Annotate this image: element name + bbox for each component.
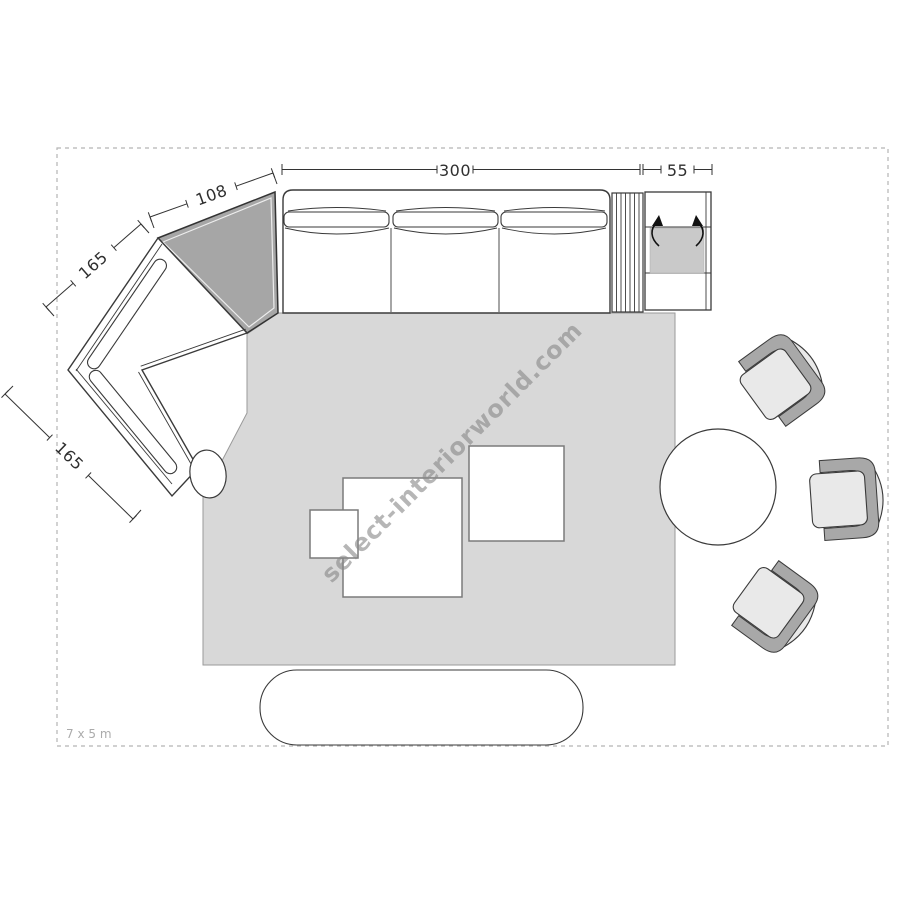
dimension-label-165-upper: 165 — [75, 247, 112, 282]
dimension-label-55: 55 — [667, 161, 688, 180]
dimension-label-300: 300 — [439, 161, 471, 180]
slatted-side-table — [612, 193, 643, 312]
round-table — [660, 429, 776, 545]
side-table-square — [469, 446, 564, 541]
sofa-back-cushion — [501, 212, 607, 227]
dimension-unit-55: 55 — [643, 161, 712, 180]
oval-bench — [260, 670, 583, 745]
storage-unit — [645, 192, 711, 310]
sofa-body — [283, 190, 610, 313]
room-area-label: 7 x 5 m — [66, 727, 112, 741]
armchair-middle — [808, 456, 885, 541]
floor-plan-drawing: 300 55 108 165 — [0, 0, 900, 900]
sofa-back-cushion — [393, 212, 498, 227]
sofa-three-seat — [283, 190, 610, 313]
unit-inner-panel — [650, 228, 704, 273]
dimension-label-108: 108 — [193, 181, 230, 210]
floor-plan-page: 300 55 108 165 — [0, 0, 900, 900]
armchair-top — [730, 326, 835, 433]
armchair-bottom — [723, 554, 828, 661]
dimension-sofa-300: 300 — [282, 161, 640, 180]
sofa-back-cushion — [284, 212, 389, 227]
